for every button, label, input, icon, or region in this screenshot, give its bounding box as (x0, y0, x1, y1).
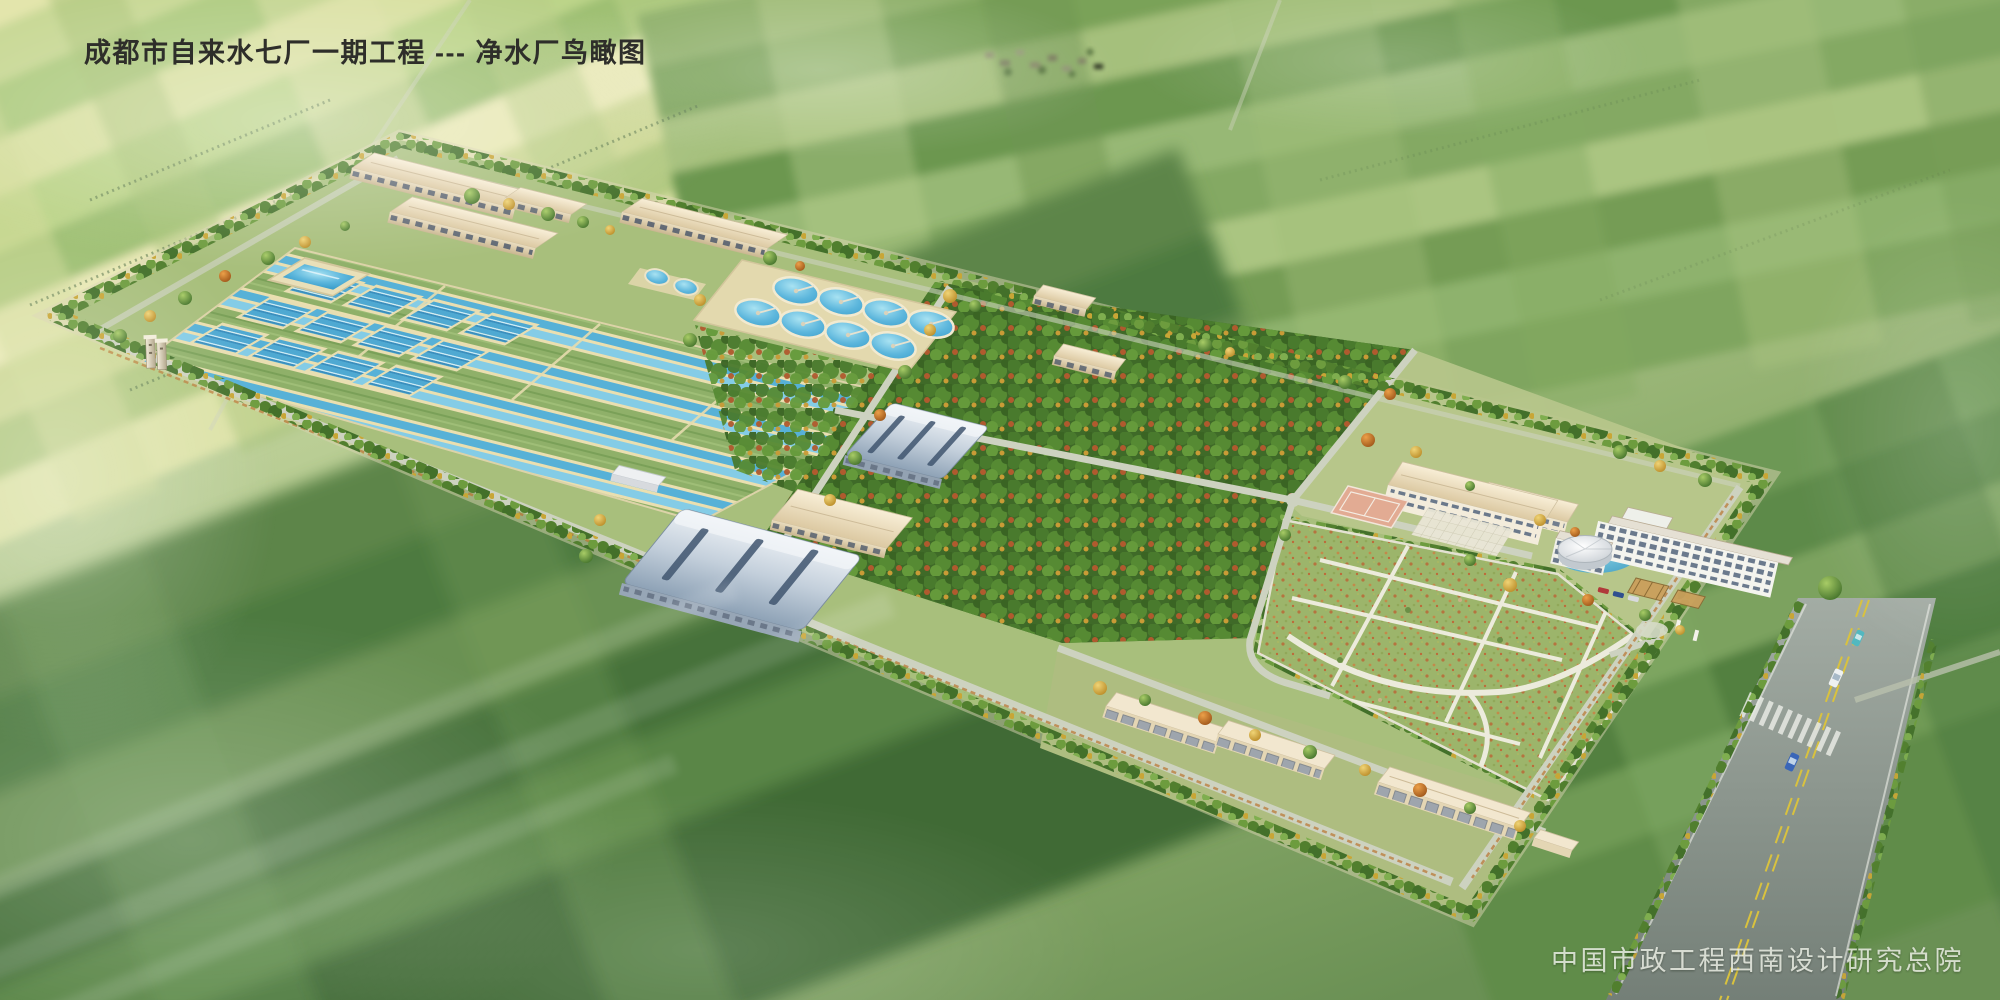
aerial-rendering: 成都市自来水七厂一期工程 --- 净水厂鸟瞰图 中国市政工程西南设计研究总院 (0, 0, 2000, 1000)
drawing-title: 成都市自来水七厂一期工程 --- 净水厂鸟瞰图 (84, 31, 646, 70)
round-reservoir (1558, 536, 1612, 571)
design-institute-watermark: 中国市政工程西南设计研究总院 (1551, 939, 1964, 978)
scene-canvas (0, 0, 2000, 1000)
